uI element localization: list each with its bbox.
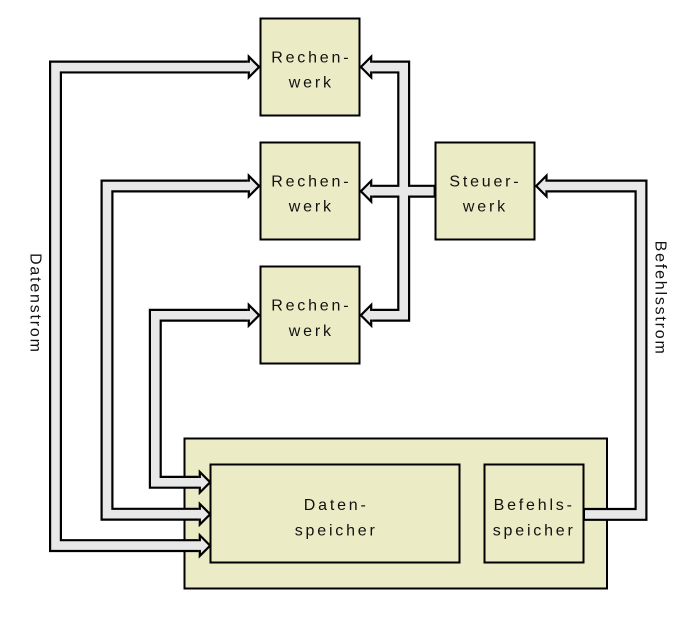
svg-text:werk: werk: [288, 199, 334, 216]
svg-text:Datenstrom: Datenstrom: [26, 253, 43, 354]
svg-text:Rechen-: Rechen-: [271, 173, 351, 190]
svg-text:werk: werk: [288, 323, 334, 340]
svg-text:Daten-: Daten-: [304, 497, 369, 514]
svg-text:Steuer-: Steuer-: [449, 173, 521, 190]
svg-text:Rechen-: Rechen-: [271, 49, 351, 66]
svg-text:werk: werk: [462, 199, 508, 216]
svg-text:Befehlsstrom: Befehlsstrom: [652, 241, 669, 356]
svg-text:speicher: speicher: [493, 522, 576, 539]
svg-text:speicher: speicher: [295, 522, 378, 539]
svg-text:Rechen-: Rechen-: [271, 298, 351, 315]
svg-text:werk: werk: [288, 75, 334, 92]
svg-text:Befehls-: Befehls-: [494, 497, 575, 514]
